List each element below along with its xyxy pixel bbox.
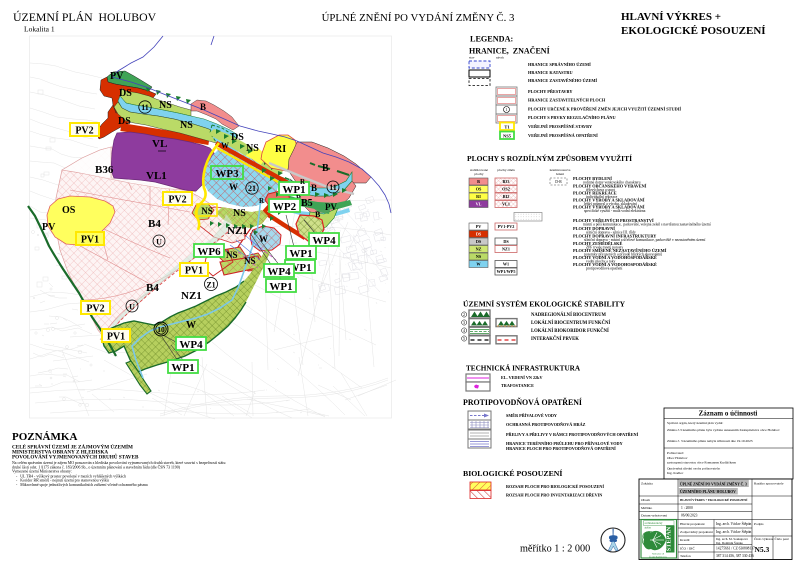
svg-text:České Budějovice: České Budějovice xyxy=(649,555,668,558)
svg-text:HRANICE KATASTRU: HRANICE KATASTRU xyxy=(528,70,573,75)
svg-text:Změna č. 3 územního plánu naby: Změna č. 3 územního plánu nabyla účinnos… xyxy=(667,439,753,443)
svg-text:PLOCHY S PRVKY REGULAČNÍHO PLÁ: PLOCHY S PRVKY REGULAČNÍHO PLÁNU xyxy=(528,115,616,120)
svg-text:PV1-PV2: PV1-PV2 xyxy=(498,224,515,229)
svg-text:HRANICE SPRÁVNÍHO ÚZEMÍ: HRANICE SPRÁVNÍHO ÚZEMÍ xyxy=(528,62,591,67)
svg-text:U: U xyxy=(129,303,135,312)
svg-text:11: 11 xyxy=(329,183,337,192)
svg-text:Ing. Dominik Šranko: Ing. Dominik Šranko xyxy=(716,540,743,545)
svg-text:Datum vyhotovení: Datum vyhotovení xyxy=(641,514,667,518)
svg-text:ÚZEMNÍ SYSTÉM EKOLOGICKÉ STABI: ÚZEMNÍ SYSTÉM EKOLOGICKÉ STABILITY xyxy=(463,299,626,309)
svg-text:ŠTĚPÁN: ŠTĚPÁN xyxy=(665,526,673,551)
svg-text:atelier: atelier xyxy=(645,527,652,530)
svg-text:Číslo paré: Číslo paré xyxy=(775,536,790,541)
svg-text:PV2: PV2 xyxy=(75,126,93,137)
svg-text:10: 10 xyxy=(157,325,165,334)
svg-text:RI: RI xyxy=(476,194,481,199)
svg-text:Zakázka: Zakázka xyxy=(641,482,653,486)
svg-text:NS: NS xyxy=(159,100,172,111)
svg-text:- Mikrovlnné spoje jednotliv: - Mikrovlnné spoje jednotlivých komunika… xyxy=(16,483,148,487)
svg-text:11: 11 xyxy=(141,103,149,112)
svg-text:NZ: NZ xyxy=(476,247,482,252)
svg-text:tělovýchova a sport: tělovýchova a sport xyxy=(586,188,615,192)
svg-text:rodinné domy venkovského chara: rodinné domy venkovského charakteru xyxy=(583,181,641,185)
svg-text:N5.3: N5.3 xyxy=(755,545,770,554)
svg-text:NS: NS xyxy=(246,143,259,154)
svg-text:IČO / DIČ: IČO / DIČ xyxy=(680,546,695,551)
svg-text:NS: NS xyxy=(180,120,193,131)
svg-text:Z1: Z1 xyxy=(206,281,215,290)
svg-text:VL: VL xyxy=(152,138,167,150)
svg-text:silniční doprava - silnice III: silniční doprava - silnice III. třídy xyxy=(586,231,636,235)
svg-text:VL: VL xyxy=(476,202,482,207)
svg-text:OS: OS xyxy=(476,187,482,192)
svg-text:RI: RI xyxy=(275,144,286,155)
svg-text:návrh: návrh xyxy=(496,56,504,60)
svg-text:vodní plochy a toky: vodní plochy a toky xyxy=(586,260,616,264)
svg-text:W: W xyxy=(186,320,196,331)
svg-text:Záznam o účinnosti: Záznam o účinnosti xyxy=(699,410,758,418)
svg-text:NS: NS xyxy=(226,250,238,260)
svg-text:WP1/WP5: WP1/WP5 xyxy=(497,269,516,274)
svg-text:Kreslil: Kreslil xyxy=(680,538,690,542)
svg-text:VEŘEJNĚ PROSPĚŠNÁ OPATŘENÍ: VEŘEJNĚ PROSPĚŠNÁ OPATŘENÍ xyxy=(528,133,598,138)
svg-text:Ing. Kadlec: Ing. Kadlec xyxy=(667,471,684,475)
svg-text:RI2: RI2 xyxy=(503,194,510,199)
svg-text:OS2: OS2 xyxy=(502,187,510,192)
svg-text:protipovodňová opatření: protipovodňová opatření xyxy=(586,267,622,271)
svg-text:PLOCHY S ROZDÍLNÝM ZPŮSOBEM VY: PLOCHY S ROZDÍLNÝM ZPŮSOBEM VYUŽITÍ xyxy=(467,153,632,163)
svg-text:HRANICE, ZNAČENÍ: HRANICE, ZNAČENÍ xyxy=(469,46,550,56)
svg-text:W: W xyxy=(221,141,229,150)
svg-text:B: B xyxy=(315,210,321,219)
svg-text:Ing. arch. Václav Štěpán: Ing. arch. Václav Štěpán xyxy=(716,529,752,534)
svg-text:Podpis: Podpis xyxy=(754,522,764,526)
svg-text:LEGENDA:: LEGENDA: xyxy=(470,35,513,44)
svg-text:ROZSAH PLOCH PRO BIOLOGICKÉ PO: ROZSAH PLOCH PRO BIOLOGICKÉ POSOUZENÍ xyxy=(506,484,604,489)
svg-text:PV2: PV2 xyxy=(168,195,186,206)
svg-text:PV: PV xyxy=(476,224,482,229)
svg-text:SMĚR PŘÍVALOVÉ VODY: SMĚR PŘÍVALOVÉ VODY xyxy=(506,413,557,418)
svg-text:NS: NS xyxy=(201,206,213,216)
svg-text:DS: DS xyxy=(119,88,132,99)
svg-text:T1: T1 xyxy=(504,124,510,129)
svg-text:PV2: PV2 xyxy=(86,304,104,315)
svg-text:2: 2 xyxy=(463,312,465,317)
svg-text:Číslo výkresu: Číslo výkresu xyxy=(754,536,774,541)
svg-text:- Koridor RR směrů - nejnutí: - Koridor RR směrů - nejnutí území pro s… xyxy=(16,478,109,483)
svg-text:DS: DS xyxy=(118,116,131,127)
svg-text:HLAVNÍ VÝKRES + EKOLOGICKÉ POS: HLAVNÍ VÝKRES + EKOLOGICKÉ POSOUZENÍ xyxy=(680,497,748,502)
svg-text:B: B xyxy=(311,183,317,193)
svg-text:TRAFOSTANICE: TRAFOSTANICE xyxy=(501,383,534,388)
svg-text:HRANICE ZASTAVITELNÝCH PLOCH: HRANICE ZASTAVITELNÝCH PLOCH xyxy=(528,98,606,103)
svg-text:LOKÁLNÍ BIOKORIDOR FUNKČNÍ: LOKÁLNÍ BIOKORIDOR FUNKČNÍ xyxy=(531,328,609,334)
svg-text:PV1: PV1 xyxy=(107,332,125,343)
svg-text:ROZSAH PLOCH PRO INVENTARIZACI: ROZSAH PLOCH PRO INVENTARIZACI DŘEVIN xyxy=(506,493,602,498)
svg-text:PV: PV xyxy=(42,222,56,233)
svg-text:B5: B5 xyxy=(301,198,313,209)
svg-text:1: 1 xyxy=(506,107,508,112)
svg-text:TECHNICKÁ INFRASTRUKTURA: TECHNICKÁ INFRASTRUKTURA xyxy=(466,363,581,373)
svg-text:DS: DS xyxy=(476,239,482,244)
svg-text:Ing. arch. Václav Štěpán: Ing. arch. Václav Štěpán xyxy=(716,521,752,526)
svg-text:Zodpovědný projektant: Zodpovědný projektant xyxy=(680,530,713,534)
svg-text:NS: NS xyxy=(233,208,246,219)
svg-text:pozemky přirozených a přírodě: pozemky přirozených a přírodě blízkých e… xyxy=(584,252,662,257)
svg-text:Hlavní projektant: Hlavní projektant xyxy=(680,522,705,526)
svg-text:Pořizovatel:: Pořizovatel: xyxy=(667,451,684,455)
svg-text:Obsah: Obsah xyxy=(641,498,650,502)
svg-text:NS: NS xyxy=(476,254,482,259)
svg-text:W: W xyxy=(259,234,268,244)
svg-text:NS5: NS5 xyxy=(503,133,512,138)
svg-text:POZNÁMKA: POZNÁMKA xyxy=(12,431,77,443)
svg-text:Vymezené území Ministerstva ob: Vymezené území Ministerstva obrany: xyxy=(12,470,72,474)
svg-text:POVOLOVÁNÍ VYJMENOVANÝCH DRUHŮ: POVOLOVÁNÍ VYJMENOVANÝCH DRUHŮ STAVEB xyxy=(12,453,139,461)
svg-text:1 : 2000: 1 : 2000 xyxy=(681,506,693,510)
svg-text:NS: NS xyxy=(244,256,256,266)
svg-text:WP1: WP1 xyxy=(171,362,194,374)
svg-text:PLOCHY PŘESTAVBY: PLOCHY PŘESTAVBY xyxy=(528,89,573,94)
svg-text:EKOLOGICKÉ POSOUZENÍ: EKOLOGICKÉ POSOUZENÍ xyxy=(621,25,766,37)
svg-text:3: 3 xyxy=(463,320,465,325)
svg-text:zastoupená starostou obce Roma: zastoupená starostou obce Romanem Kudláč… xyxy=(667,461,736,465)
svg-text:DS: DS xyxy=(231,132,244,143)
svg-text:EL. VEDENÍ VN 22kV: EL. VEDENÍ VN 22kV xyxy=(501,375,543,380)
svg-text:D-R: D-R xyxy=(555,180,562,184)
svg-text:Obec Holubov: Obec Holubov xyxy=(667,456,688,460)
svg-text:Razítko zpracovatele: Razítko zpracovatele xyxy=(754,482,784,486)
svg-text:ÚZEMNÍ PLÁN HOLUBOV: ÚZEMNÍ PLÁN HOLUBOV xyxy=(13,10,157,24)
svg-text:21: 21 xyxy=(248,184,256,193)
svg-text:ÚPLNÉ ZNĚNÍ PO VYDÁNÍ ZMĚNY Č.: ÚPLNÉ ZNĚNÍ PO VYDÁNÍ ZMĚNY Č. 3 xyxy=(680,481,747,486)
svg-text:ZPF trvale travní porosty: ZPF trvale travní porosty xyxy=(586,246,623,250)
svg-text:Telefon: Telefon xyxy=(680,554,691,558)
svg-text:INTERAKČNÍ PRVEK: INTERAKČNÍ PRVEK xyxy=(531,336,579,342)
svg-text:Lokalita 1: Lokalita 1 xyxy=(24,25,55,34)
svg-text:PLOCHY URČENÉ K PROVĚŘENÍ ZMĚN: PLOCHY URČENÉ K PROVĚŘENÍ ZMĚN JEJICH VY… xyxy=(528,107,681,112)
svg-text:06/06/2023: 06/06/2023 xyxy=(681,514,698,518)
svg-text:4: 4 xyxy=(463,328,465,333)
svg-text:DS: DS xyxy=(476,232,482,237)
svg-text:5: 5 xyxy=(463,336,465,341)
svg-text:B36: B36 xyxy=(95,164,114,176)
svg-text:individuální rekreace: individuální rekreace xyxy=(586,195,618,199)
svg-text:VL1: VL1 xyxy=(502,202,510,207)
svg-text:OCHRANNÁ PROTIPOVODŇOVÁ HRÁZ: OCHRANNÁ PROTIPOVODŇOVÁ HRÁZ xyxy=(506,422,586,427)
svg-text:W1: W1 xyxy=(503,262,509,267)
svg-text:PV1: PV1 xyxy=(185,266,203,277)
svg-text:PV1: PV1 xyxy=(81,235,99,246)
svg-text:B4: B4 xyxy=(148,218,161,230)
svg-text:Změna č.3 územního plánu byla: Změna č.3 územního plánu byla vydána usn… xyxy=(667,428,780,432)
svg-text:PV: PV xyxy=(110,71,124,82)
svg-text:PROTIPOVODŇOVÁ OPATŘENÍ: PROTIPOVODŇOVÁ OPATŘENÍ xyxy=(463,397,582,407)
svg-text:HLAVNÍ VÝKRES +: HLAVNÍ VÝKRES + xyxy=(621,11,721,23)
svg-text:Oprávněná úřední osoba pořizov: Oprávněná úřední osoba pořizovatele: xyxy=(667,467,720,471)
svg-text:WP1: WP1 xyxy=(289,248,312,260)
svg-text:DS: DS xyxy=(503,239,509,244)
svg-text:WP6: WP6 xyxy=(197,246,221,258)
svg-text:U: U xyxy=(156,238,162,247)
svg-text:NADREGIONÁLNÍ BIOCENTRUM: NADREGIONÁLNÍ BIOCENTRUM xyxy=(531,312,606,318)
svg-text:plochy změn: plochy změn xyxy=(497,168,515,172)
svg-text:WP1: WP1 xyxy=(269,281,292,293)
svg-text:specifické využití - malá vodn: specifické využití - malá vodní elektrár… xyxy=(584,209,646,213)
svg-text:OS: OS xyxy=(62,205,76,216)
svg-text:B: B xyxy=(322,163,329,174)
svg-text:B: B xyxy=(200,102,206,112)
svg-text:řešení: řešení xyxy=(556,172,564,176)
svg-text:B33: B33 xyxy=(503,179,510,184)
svg-text:stav: stav xyxy=(469,56,475,60)
svg-text:ÚZEMNÍHO PLÁNU HOLUBOV: ÚZEMNÍHO PLÁNU HOLUBOV xyxy=(680,489,736,494)
svg-text:VL1: VL1 xyxy=(146,170,167,182)
svg-text:LOKÁLNÍ BIOCENTRUM FUNKČNÍ: LOKÁLNÍ BIOCENTRUM FUNKČNÍ xyxy=(531,320,610,326)
svg-text:WP2: WP2 xyxy=(273,201,297,213)
svg-text:B: B xyxy=(477,179,480,184)
svg-text:Měřítko: Měřítko xyxy=(641,506,653,510)
svg-text:NZ1: NZ1 xyxy=(181,290,202,302)
svg-text:NZ1: NZ1 xyxy=(502,247,510,252)
svg-text:ÚPLNÉ ZNĚNÍ PO VYDÁNÍ ZMĚNY Č.: ÚPLNÉ ZNĚNÍ PO VYDÁNÍ ZMĚNY Č. 3 xyxy=(322,12,515,24)
svg-text:W: W xyxy=(229,182,238,192)
svg-text:HRANICE PLOCH PRO PROTIPOVODŇO: HRANICE PLOCH PRO PROTIPOVODŇOVÁ OPATŘEN… xyxy=(506,446,616,451)
svg-text:HRANICE ZASTAVĚNÉHO ÚZEMÍ: HRANICE ZASTAVĚNÉHO ÚZEMÍ xyxy=(528,78,597,83)
svg-text:PV: PV xyxy=(325,202,337,212)
svg-text:architektonický: architektonický xyxy=(645,521,664,525)
svg-text:WP3: WP3 xyxy=(215,168,239,180)
svg-text:VEŘEJNĚ PROSPĚŠNÉ STAVBY: VEŘEJNĚ PROSPĚŠNÉ STAVBY xyxy=(528,124,593,129)
svg-text:BIOLOGICKÉ POSOUZENÍ: BIOLOGICKÉ POSOUZENÍ xyxy=(463,468,562,478)
svg-text:měřítko 1 : 2 000: měřítko 1 : 2 000 xyxy=(520,544,590,555)
svg-text:NZ1: NZ1 xyxy=(227,225,248,237)
svg-text:14275661 / CZ 630808137: 14275661 / CZ 630808137 xyxy=(716,547,755,551)
svg-text:PŘELIVY A PŘELIVY V RÁMCI PROT: PŘELIVY A PŘELIVY V RÁMCI PROTIPOVODŇOVÝ… xyxy=(506,432,639,437)
svg-text:plochy: plochy xyxy=(474,172,484,176)
svg-text:WP4: WP4 xyxy=(267,266,291,278)
svg-text:WP4: WP4 xyxy=(179,339,203,351)
svg-text:B4: B4 xyxy=(146,282,159,294)
